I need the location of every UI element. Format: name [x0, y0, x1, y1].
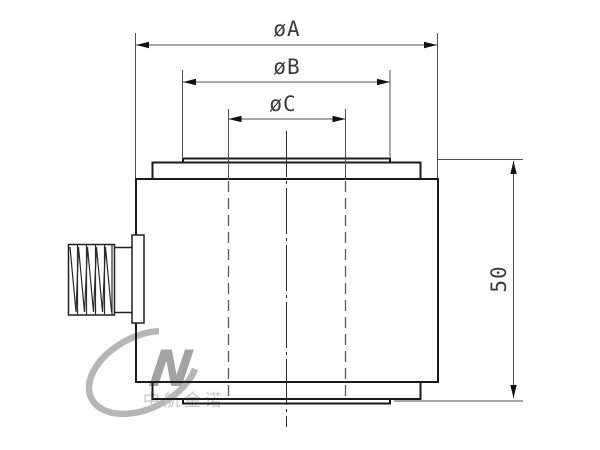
cable-connector	[69, 235, 145, 323]
technical-drawing-canvas: N 中航金诺	[0, 0, 600, 450]
dim-h-label: 50	[487, 265, 511, 292]
dim-a-arrow-left	[136, 42, 149, 48]
thread-zigzag	[70, 247, 112, 312]
watermark: N 中航金诺	[89, 331, 225, 414]
dim-c-arrow-left	[229, 116, 242, 122]
dim-c-arrow-right	[333, 116, 346, 122]
dim-b-label: øB	[273, 55, 300, 79]
dim-a-label: øA	[273, 17, 300, 41]
watermark-letter: N	[146, 339, 196, 398]
dim-a-arrow-right	[424, 42, 437, 48]
drawing-page: N 中航金诺	[0, 0, 600, 450]
dim-h-arrow-bottom	[510, 385, 516, 398]
dim-b-arrow-right	[377, 79, 390, 85]
dim-h-arrow-top	[510, 161, 516, 174]
dim-b-arrow-left	[183, 79, 196, 85]
thread-lines	[70, 245, 112, 315]
dim-c-label: øC	[269, 92, 296, 116]
dimension-height: 50	[394, 160, 523, 402]
connector-boss	[132, 235, 144, 323]
